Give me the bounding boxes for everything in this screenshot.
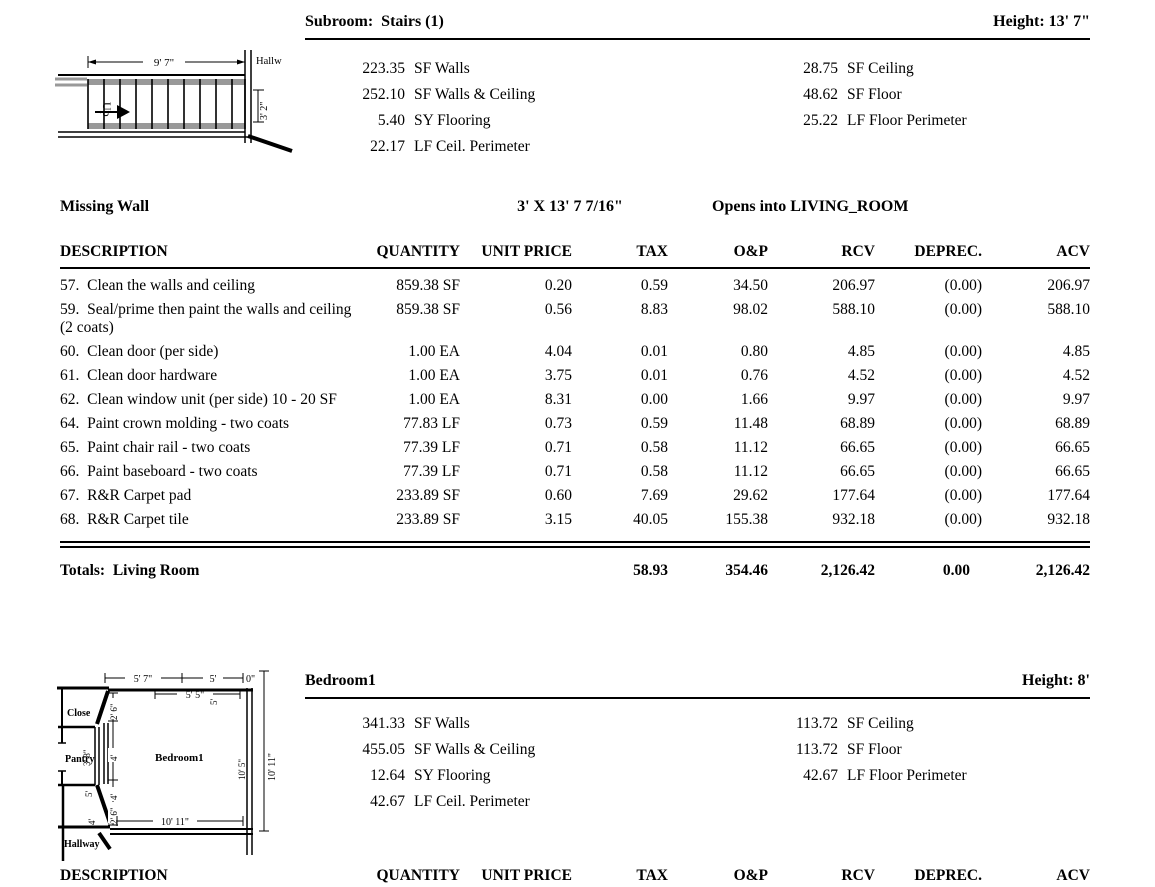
col-header-description: DESCRIPTION	[60, 243, 360, 267]
meas-label: SF Walls	[414, 56, 470, 82]
stairs-width-dim-label: 9' 7"	[154, 57, 174, 69]
meas-value: 28.75	[715, 56, 838, 82]
dim-right-inner: 10' 5"	[237, 759, 247, 780]
item-description: 60. Clean door (per side)	[60, 340, 360, 364]
meas-value: 22.17	[305, 134, 405, 160]
col-header-rcv: RCV	[768, 864, 875, 887]
totals-deprec: 0.00	[875, 548, 982, 583]
room-label-pantry: Pantry	[65, 754, 94, 765]
totals-divider	[60, 541, 1090, 548]
line-item-table: DESCRIPTION QUANTITY UNIT PRICE TAX O&P …	[60, 243, 1090, 583]
stairs-bottom-wall	[58, 132, 251, 137]
meas-label: LF Ceil. Perimeter	[414, 134, 530, 160]
missing-wall-opens-into: Opens into LIVING_ROOM	[712, 198, 908, 216]
item-tax: 0.59	[572, 412, 668, 436]
dim-top-2: 5'	[210, 674, 217, 685]
meas-value: 113.72	[715, 711, 838, 737]
hallway-label: Hallw	[256, 56, 282, 67]
dim-top-3: 0"	[246, 674, 255, 685]
item-tax: 0.58	[572, 436, 668, 460]
table-header-row: DESCRIPTION QUANTITY UNIT PRICE TAX O&P …	[60, 243, 1090, 269]
item-description: 66. Paint baseboard - two coats	[60, 460, 360, 484]
item-unit-price: 0.56	[460, 298, 572, 340]
item-quantity: 77.39 LF	[360, 460, 460, 484]
stairs-measurements-right: 28.75SF Ceiling 48.62SF Floor 25.22LF Fl…	[715, 56, 967, 134]
item-deprec: (0.00)	[875, 340, 982, 364]
measurement-row: 48.62SF Floor	[715, 82, 967, 108]
item-op: 1.66	[668, 388, 768, 412]
item-op: 98.02	[668, 298, 768, 340]
table-row: 57. Clean the walls and ceiling 859.38 S…	[60, 269, 1090, 298]
stairs-right-wall	[245, 50, 251, 143]
stairs-section-header: Subroom: Stairs (1) Height: 13' 7"	[305, 13, 1090, 40]
meas-value: 12.64	[305, 763, 405, 789]
meas-label: SF Walls & Ceiling	[414, 82, 535, 108]
item-description: 57. Clean the walls and ceiling	[60, 274, 360, 298]
totals-op: 354.46	[668, 548, 768, 583]
bedroom-table-header: DESCRIPTION QUANTITY UNIT PRICE TAX O&P …	[60, 864, 1090, 887]
item-unit-price: 0.71	[460, 436, 572, 460]
col-header-tax: TAX	[572, 864, 668, 887]
room-label-closet: Close	[67, 708, 91, 719]
measurement-row: 28.75SF Ceiling	[715, 56, 967, 82]
item-deprec: (0.00)	[875, 298, 982, 340]
dim-right-outer: 10' 11"	[267, 753, 278, 781]
measurement-row: 455.05SF Walls & Ceiling	[305, 737, 535, 763]
bedroom-measurements-right: 113.72SF Ceiling 113.72SF Floor 42.67LF …	[715, 711, 967, 789]
item-acv: 206.97	[982, 274, 1090, 298]
item-unit-price: 3.75	[460, 364, 572, 388]
bedroom-floorplan-diagram: 5' 7" 5' 0" 5' 5"	[55, 663, 310, 863]
measurement-row: 252.10SF Walls & Ceiling	[305, 82, 535, 108]
table-row: 68. R&R Carpet tile 233.89 SF 3.15 40.05…	[60, 508, 1090, 532]
missing-wall-size: 3' X 13' 7 7/16"	[445, 198, 695, 216]
item-unit-price: 0.73	[460, 412, 572, 436]
col-header-quantity: QUANTITY	[360, 864, 460, 887]
item-tax: 0.01	[572, 340, 668, 364]
item-op: 155.38	[668, 508, 768, 532]
item-acv: 66.65	[982, 436, 1090, 460]
item-acv: 68.89	[982, 412, 1090, 436]
item-deprec: (0.00)	[875, 364, 982, 388]
measurement-row: 12.64SY Flooring	[305, 763, 535, 789]
item-rcv: 932.18	[768, 508, 875, 532]
item-quantity: 77.39 LF	[360, 436, 460, 460]
item-unit-price: 4.04	[460, 340, 572, 364]
item-unit-price: 8.31	[460, 388, 572, 412]
room-label-bedroom: Bedroom1	[155, 752, 204, 764]
missing-wall-label: Missing Wall	[60, 198, 149, 216]
table-row: 62. Clean window unit (per side) 10 - 20…	[60, 388, 1090, 412]
meas-label: LF Floor Perimeter	[847, 763, 967, 789]
item-unit-price: 3.15	[460, 508, 572, 532]
dim-inner-1: 2' 6"	[109, 703, 119, 720]
col-header-acv: ACV	[982, 864, 1090, 887]
col-header-description: DESCRIPTION	[60, 864, 360, 887]
item-tax: 0.00	[572, 388, 668, 412]
item-op: 11.48	[668, 412, 768, 436]
item-acv: 4.52	[982, 364, 1090, 388]
item-rcv: 206.97	[768, 274, 875, 298]
meas-label: LF Floor Perimeter	[847, 108, 967, 134]
item-rcv: 68.89	[768, 412, 875, 436]
item-deprec: (0.00)	[875, 436, 982, 460]
missing-wall-row: Missing Wall 3' X 13' 7 7/16" Opens into…	[60, 198, 1090, 220]
col-header-tax: TAX	[572, 243, 668, 267]
col-header-op: O&P	[668, 243, 768, 267]
item-rcv: 9.97	[768, 388, 875, 412]
totals-tax: 58.93	[572, 548, 668, 583]
subroom-height: Height: 13' 7"	[993, 13, 1090, 31]
item-deprec: (0.00)	[875, 274, 982, 298]
item-tax: 0.58	[572, 460, 668, 484]
dim-inner-3: 4'	[109, 794, 119, 801]
meas-label: SF Walls	[414, 711, 470, 737]
item-op: 0.76	[668, 364, 768, 388]
item-quantity: 859.38 SF	[360, 298, 460, 340]
meas-label: SF Ceiling	[847, 56, 914, 82]
item-rcv: 177.64	[768, 484, 875, 508]
table-row: 59. Seal/prime then paint the walls and …	[60, 298, 1090, 340]
item-description: 61. Clean door hardware	[60, 364, 360, 388]
item-acv: 66.65	[982, 460, 1090, 484]
measurement-row: 223.35SF Walls	[305, 56, 535, 82]
up-label: Up	[100, 102, 114, 117]
item-description: 64. Paint crown molding - two coats	[60, 412, 360, 436]
table-row: 64. Paint crown molding - two coats 77.8…	[60, 412, 1090, 436]
totals-row: Totals: Living Room 58.93 354.46 2,126.4…	[60, 548, 1090, 583]
table-row: 60. Clean door (per side) 1.00 EA 4.04 0…	[60, 340, 1090, 364]
table-row: 61. Clean door hardware 1.00 EA 3.75 0.0…	[60, 364, 1090, 388]
meas-value: 341.33	[305, 711, 405, 737]
meas-value: 5.40	[305, 108, 405, 134]
measurement-row: 341.33SF Walls	[305, 711, 535, 737]
dim-top-4: 5' 5"	[186, 690, 204, 701]
item-tax: 0.01	[572, 364, 668, 388]
item-acv: 9.97	[982, 388, 1090, 412]
dim-hall: 4'	[87, 819, 97, 826]
meas-value: 252.10	[305, 82, 405, 108]
totals-label: Totals: Living Room	[60, 548, 572, 583]
item-quantity: 1.00 EA	[360, 364, 460, 388]
meas-value: 48.62	[715, 82, 838, 108]
item-quantity: 1.00 EA	[360, 388, 460, 412]
item-tax: 8.83	[572, 298, 668, 340]
dim-inner-2: 4'	[109, 755, 119, 762]
item-deprec: (0.00)	[875, 412, 982, 436]
dim-bottom: 10' 11"	[161, 817, 189, 828]
meas-label: SF Floor	[847, 82, 902, 108]
measurement-row: 42.67LF Ceil. Perimeter	[305, 789, 535, 815]
totals-rcv: 2,126.42	[768, 548, 875, 583]
meas-value: 25.22	[715, 108, 838, 134]
bedroom-title: Bedroom1	[305, 672, 376, 690]
item-op: 34.50	[668, 274, 768, 298]
item-deprec: (0.00)	[875, 484, 982, 508]
room-label-hallway: Hallway	[64, 839, 100, 850]
col-header-op: O&P	[668, 864, 768, 887]
col-header-deprec: DEPREC.	[875, 864, 982, 887]
measurement-row: 113.72SF Floor	[715, 737, 967, 763]
estimate-page: 9' 7" Up	[0, 0, 1155, 887]
dim-top-1: 5' 7"	[134, 674, 152, 685]
item-description: 59. Seal/prime then paint the walls and …	[60, 298, 360, 340]
measurement-row: 5.40SY Flooring	[305, 108, 535, 134]
col-header-acv: ACV	[982, 243, 1090, 267]
item-deprec: (0.00)	[875, 388, 982, 412]
meas-label: SF Walls & Ceiling	[414, 737, 535, 763]
item-rcv: 66.65	[768, 460, 875, 484]
meas-value: 223.35	[305, 56, 405, 82]
meas-label: LF Ceil. Perimeter	[414, 789, 530, 815]
col-header-unit-price: UNIT PRICE	[460, 864, 572, 887]
measurement-row: 22.17LF Ceil. Perimeter	[305, 134, 535, 160]
table-row: 65. Paint chair rail - two coats 77.39 L…	[60, 436, 1090, 460]
item-op: 11.12	[668, 460, 768, 484]
item-rcv: 588.10	[768, 298, 875, 340]
item-tax: 40.05	[572, 508, 668, 532]
measurement-row: 113.72SF Ceiling	[715, 711, 967, 737]
item-deprec: (0.00)	[875, 460, 982, 484]
bedroom-height: Height: 8'	[1022, 672, 1090, 690]
item-quantity: 233.89 SF	[360, 508, 460, 532]
col-header-unit-price: UNIT PRICE	[460, 243, 572, 267]
totals-acv: 2,126.42	[982, 548, 1090, 583]
item-unit-price: 0.71	[460, 460, 572, 484]
meas-label: SY Flooring	[414, 108, 491, 134]
item-description: 65. Paint chair rail - two coats	[60, 436, 360, 460]
bedroom-section-header: Bedroom1 Height: 8'	[305, 672, 1090, 699]
item-rcv: 4.85	[768, 340, 875, 364]
stairs-floorplan-diagram: 9' 7" Up	[55, 40, 305, 165]
measurement-row: 25.22LF Floor Perimeter	[715, 108, 967, 134]
item-description: 68. R&R Carpet tile	[60, 508, 360, 532]
meas-value: 42.67	[715, 763, 838, 789]
table-row: 67. R&R Carpet pad 233.89 SF 0.60 7.69 2…	[60, 484, 1090, 508]
bedroom-right-dimension	[259, 671, 269, 831]
item-acv: 588.10	[982, 298, 1090, 340]
bedroom-measurements-left: 341.33SF Walls 455.05SF Walls & Ceiling …	[305, 711, 535, 815]
item-quantity: 859.38 SF	[360, 274, 460, 298]
item-acv: 4.85	[982, 340, 1090, 364]
item-rcv: 66.65	[768, 436, 875, 460]
item-op: 11.12	[668, 436, 768, 460]
item-acv: 177.64	[982, 484, 1090, 508]
meas-label: SY Flooring	[414, 763, 491, 789]
item-tax: 0.59	[572, 274, 668, 298]
item-tax: 7.69	[572, 484, 668, 508]
meas-value: 455.05	[305, 737, 405, 763]
col-header-rcv: RCV	[768, 243, 875, 267]
item-unit-price: 0.60	[460, 484, 572, 508]
door-swing	[248, 136, 292, 151]
wall-opening-symbol	[55, 79, 87, 85]
item-quantity: 1.00 EA	[360, 340, 460, 364]
meas-label: SF Floor	[847, 737, 902, 763]
item-unit-price: 0.20	[460, 274, 572, 298]
stairs-height-dim-label: 3' 2"	[259, 102, 270, 120]
item-rcv: 4.52	[768, 364, 875, 388]
item-deprec: (0.00)	[875, 508, 982, 532]
item-op: 29.62	[668, 484, 768, 508]
col-header-quantity: QUANTITY	[360, 243, 460, 267]
dim-top-right: 5'	[209, 699, 219, 706]
dim-lower-left: 5'	[84, 791, 94, 798]
col-header-deprec: DEPREC.	[875, 243, 982, 267]
item-quantity: 77.83 LF	[360, 412, 460, 436]
table-header-row: DESCRIPTION QUANTITY UNIT PRICE TAX O&P …	[60, 864, 1090, 887]
meas-value: 42.67	[305, 789, 405, 815]
meas-label: SF Ceiling	[847, 711, 914, 737]
item-op: 0.80	[668, 340, 768, 364]
item-description: 67. R&R Carpet pad	[60, 484, 360, 508]
item-acv: 932.18	[982, 508, 1090, 532]
table-row: 66. Paint baseboard - two coats 77.39 LF…	[60, 460, 1090, 484]
meas-value: 113.72	[715, 737, 838, 763]
item-quantity: 233.89 SF	[360, 484, 460, 508]
measurement-row: 42.67LF Floor Perimeter	[715, 763, 967, 789]
stairs-measurements-left: 223.35SF Walls 252.10SF Walls & Ceiling …	[305, 56, 535, 160]
item-description: 62. Clean window unit (per side) 10 - 20…	[60, 388, 360, 412]
subroom-title: Subroom: Stairs (1)	[305, 13, 444, 31]
